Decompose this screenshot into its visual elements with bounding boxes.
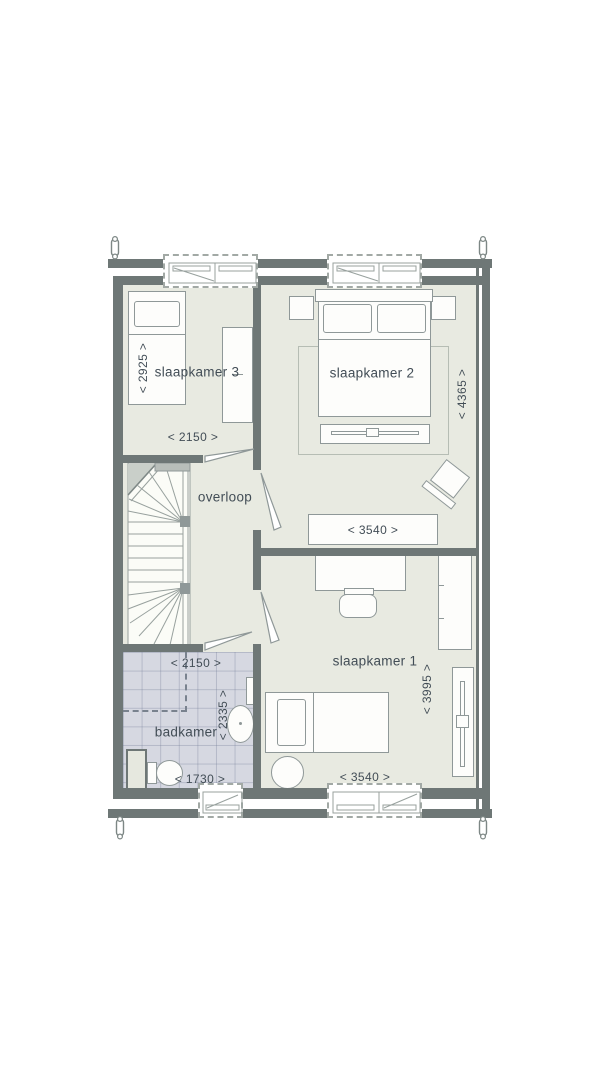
wardrobe-tick	[438, 618, 444, 619]
nightstand-left	[289, 296, 314, 320]
room-label-badkamer: badkamer	[155, 725, 217, 740]
wall-anchor-bottom-right-icon	[477, 815, 489, 846]
room-label-slaapkamer2: slaapkamer 2	[330, 366, 415, 381]
window-bottom-bathroom	[198, 783, 243, 818]
bed-blanket-line	[129, 334, 185, 335]
wall-corridor-upper	[253, 285, 261, 470]
dim-slaapkamer1-depth: < 3995 >	[420, 664, 434, 715]
dim-slaapkamer3-depth: < 2925 >	[136, 343, 150, 394]
room-label-slaapkamer3: slaapkamer 3	[155, 365, 240, 380]
wall-anchor-top-left-icon	[109, 235, 121, 266]
wall-left	[113, 276, 123, 799]
window-top-right	[327, 254, 422, 288]
bed-pillow	[134, 301, 180, 327]
wall-party-right-outer	[482, 259, 490, 809]
bed-pillow	[323, 304, 372, 333]
dim-slaapkamer3-width: < 2150 >	[168, 430, 219, 444]
washbasin-drain	[239, 722, 242, 725]
wardrobe-tick	[438, 585, 444, 586]
dim-badkamer-width-bottom: < 1730 >	[175, 772, 226, 786]
wall-anchor-bottom-left-icon	[114, 815, 126, 846]
window-top-left	[163, 254, 258, 288]
tv-bracket	[366, 428, 379, 437]
desk	[315, 553, 406, 591]
wall-corridor-mid	[253, 530, 261, 590]
bed-pillow	[377, 304, 426, 333]
window-bottom-bedroom	[327, 783, 422, 818]
dim-badkamer-width-top: < 2150 >	[171, 656, 222, 670]
sliding-wardrobe-handle	[456, 715, 469, 728]
wall-slaapkamer2-1	[261, 548, 476, 556]
room-label-overloop: overloop	[198, 490, 252, 505]
nightstand-right	[431, 296, 456, 320]
wall-anchor-top-right-icon	[477, 235, 489, 266]
desk-chair	[339, 594, 377, 618]
wall-bottom-outer	[108, 809, 492, 818]
wall-bottom-facade	[113, 788, 490, 799]
bed-blanket-line	[319, 339, 430, 340]
pouf	[271, 756, 304, 789]
wall-corridor-lower	[253, 644, 261, 788]
bed-pillow	[277, 699, 306, 746]
wall-party-right-inner	[476, 259, 479, 809]
room-label-slaapkamer1: slaapkamer 1	[333, 654, 418, 669]
wall-badkamer-top	[123, 644, 203, 652]
dim-slaapkamer2-depth: < 4365 >	[455, 369, 469, 420]
wall-slaapkamer3-overloop	[123, 455, 203, 463]
wardrobe	[438, 553, 472, 650]
dim-badkamer-depth: < 2335 >	[216, 690, 230, 741]
dim-slaapkamer1-width: < 3540 >	[340, 770, 391, 784]
bed-blanket-line	[313, 693, 314, 752]
duct	[126, 749, 147, 793]
floor-plan: slaapkamer 3 < 2925 > < 2150 > slaapkame…	[0, 0, 614, 1092]
dim-slaapkamer2-width: < 3540 >	[348, 523, 399, 537]
